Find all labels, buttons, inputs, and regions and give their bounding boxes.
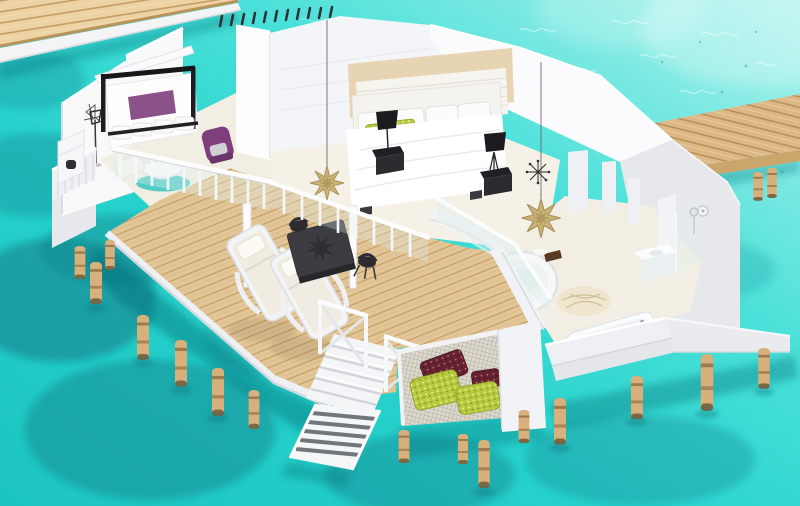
glass-shower <box>676 202 700 274</box>
shower-head <box>690 208 698 216</box>
entry-pillar <box>236 26 270 160</box>
scene-canvas <box>0 0 800 506</box>
palm-leaf-rug <box>557 286 611 316</box>
villa-render <box>0 0 800 506</box>
kettle <box>66 160 76 169</box>
